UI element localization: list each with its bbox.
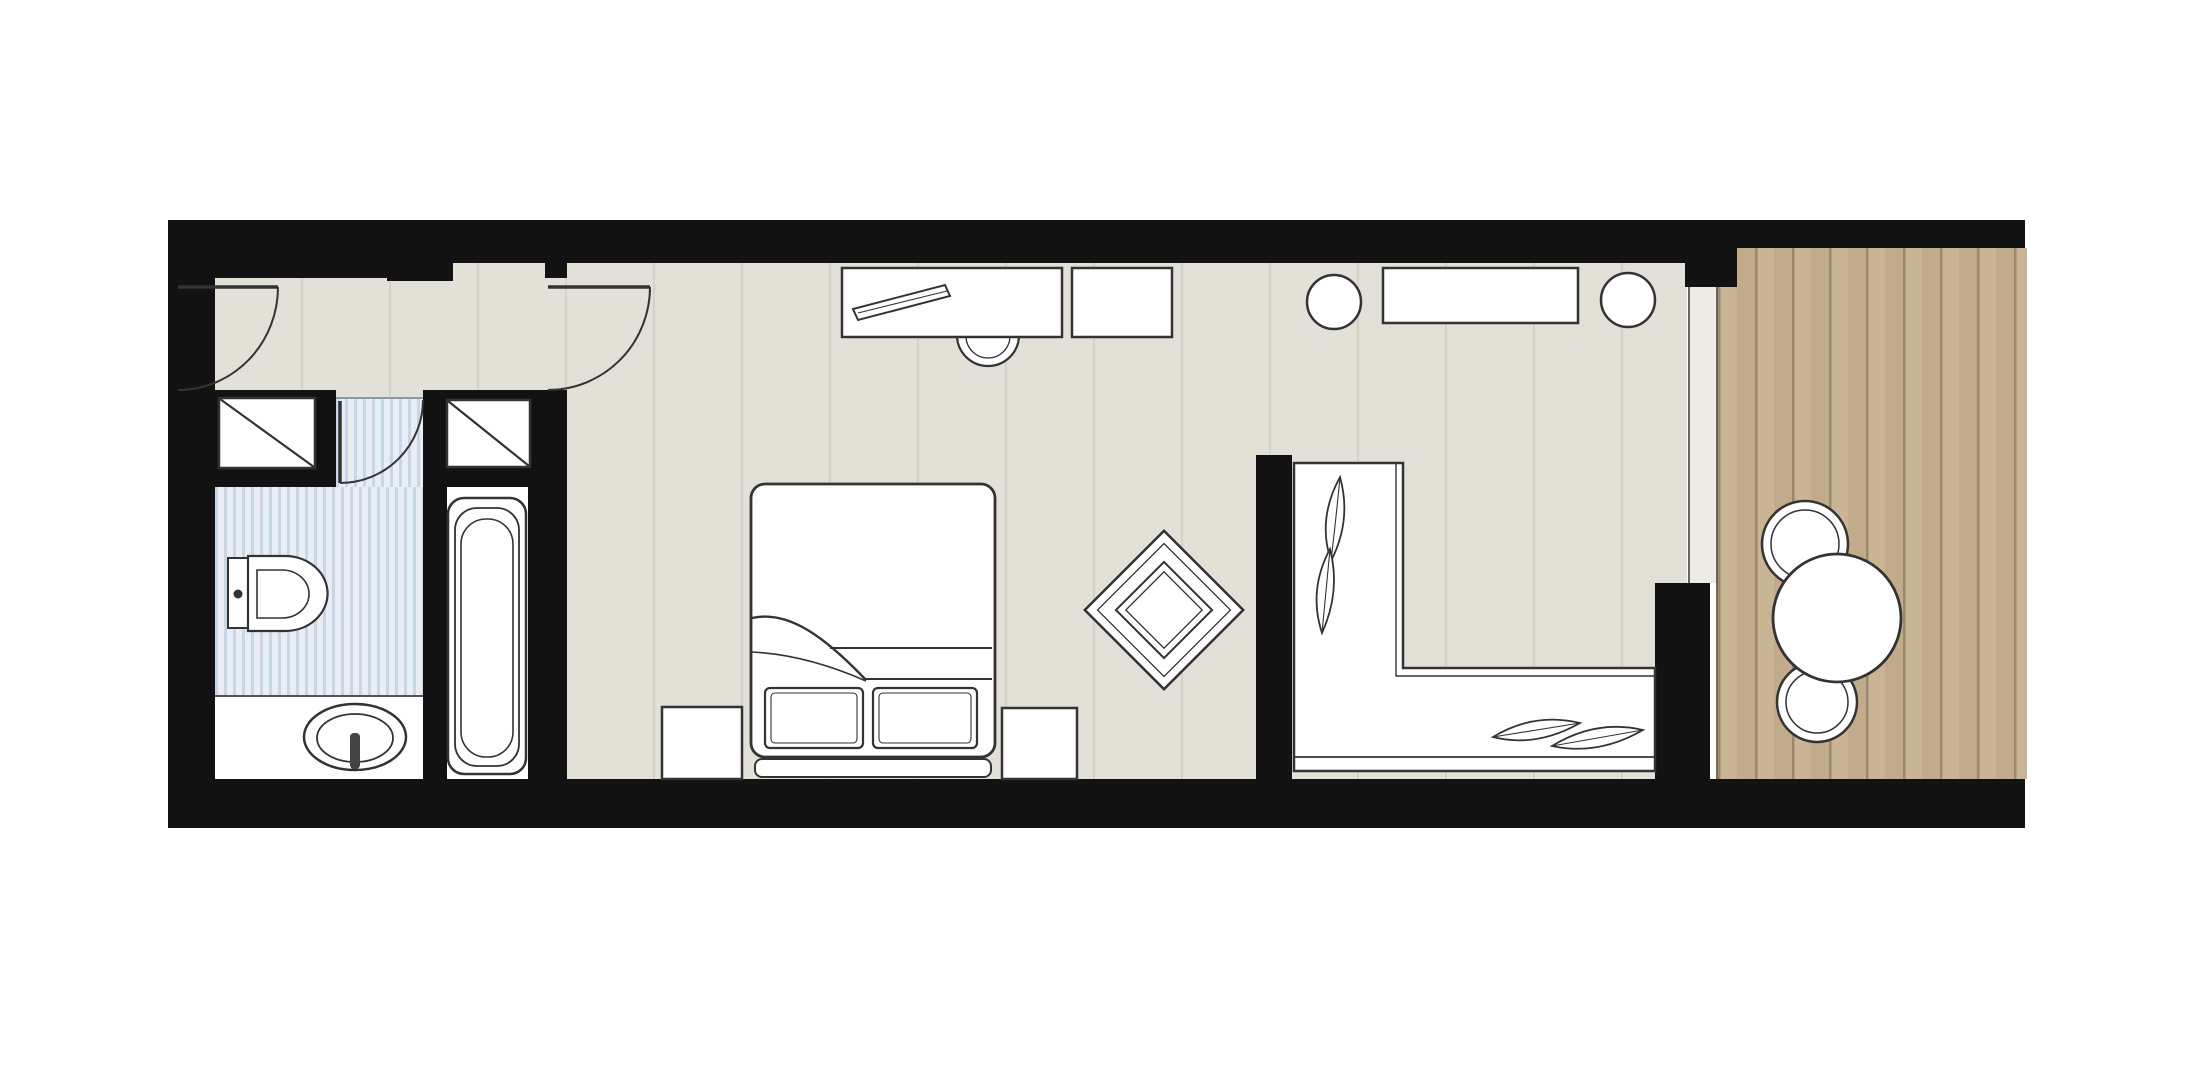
bathroom-door-swing (340, 400, 423, 483)
bathtub (448, 498, 526, 774)
toilet (228, 556, 328, 631)
armchair-rotated (1085, 531, 1243, 689)
wardrobe-left (219, 398, 315, 468)
round-stool-left (1307, 275, 1361, 329)
nightstand-left (662, 707, 742, 779)
entry-door-swing (178, 287, 278, 390)
balcony-table (1773, 554, 1901, 682)
desk (842, 268, 1062, 337)
floor-plan-canvas (0, 0, 2209, 1080)
bed-base (755, 759, 991, 777)
nightstand-right (1002, 708, 1077, 779)
toilet-flush-dot (234, 590, 243, 599)
desk-chair (957, 335, 1019, 366)
bedroom-door-swing (548, 287, 650, 390)
plan-linework (0, 0, 2209, 1080)
double-bed (751, 484, 995, 777)
pillow-left (765, 688, 863, 748)
washbasin (304, 704, 406, 770)
wardrobe-right (447, 400, 530, 467)
pillow-right (873, 688, 977, 748)
corner-sofa (1294, 463, 1655, 771)
round-stool-right (1601, 273, 1655, 327)
console-table (1383, 268, 1578, 323)
side-table (1072, 268, 1172, 337)
basin-tap (350, 733, 360, 769)
